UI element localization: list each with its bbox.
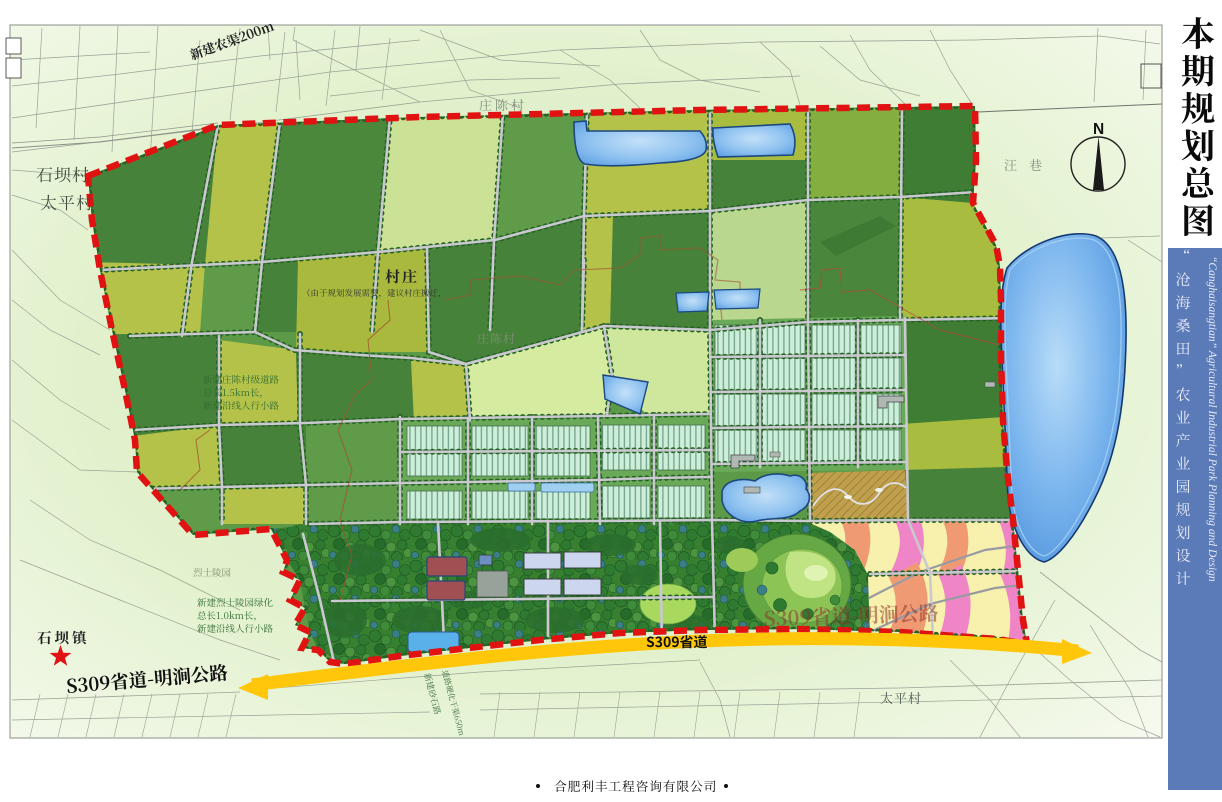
svg-text:N: N bbox=[1093, 121, 1104, 138]
svg-text:“Canghaisangtian” Agricultural: “Canghaisangtian” Agricultural Industria… bbox=[1206, 256, 1218, 582]
